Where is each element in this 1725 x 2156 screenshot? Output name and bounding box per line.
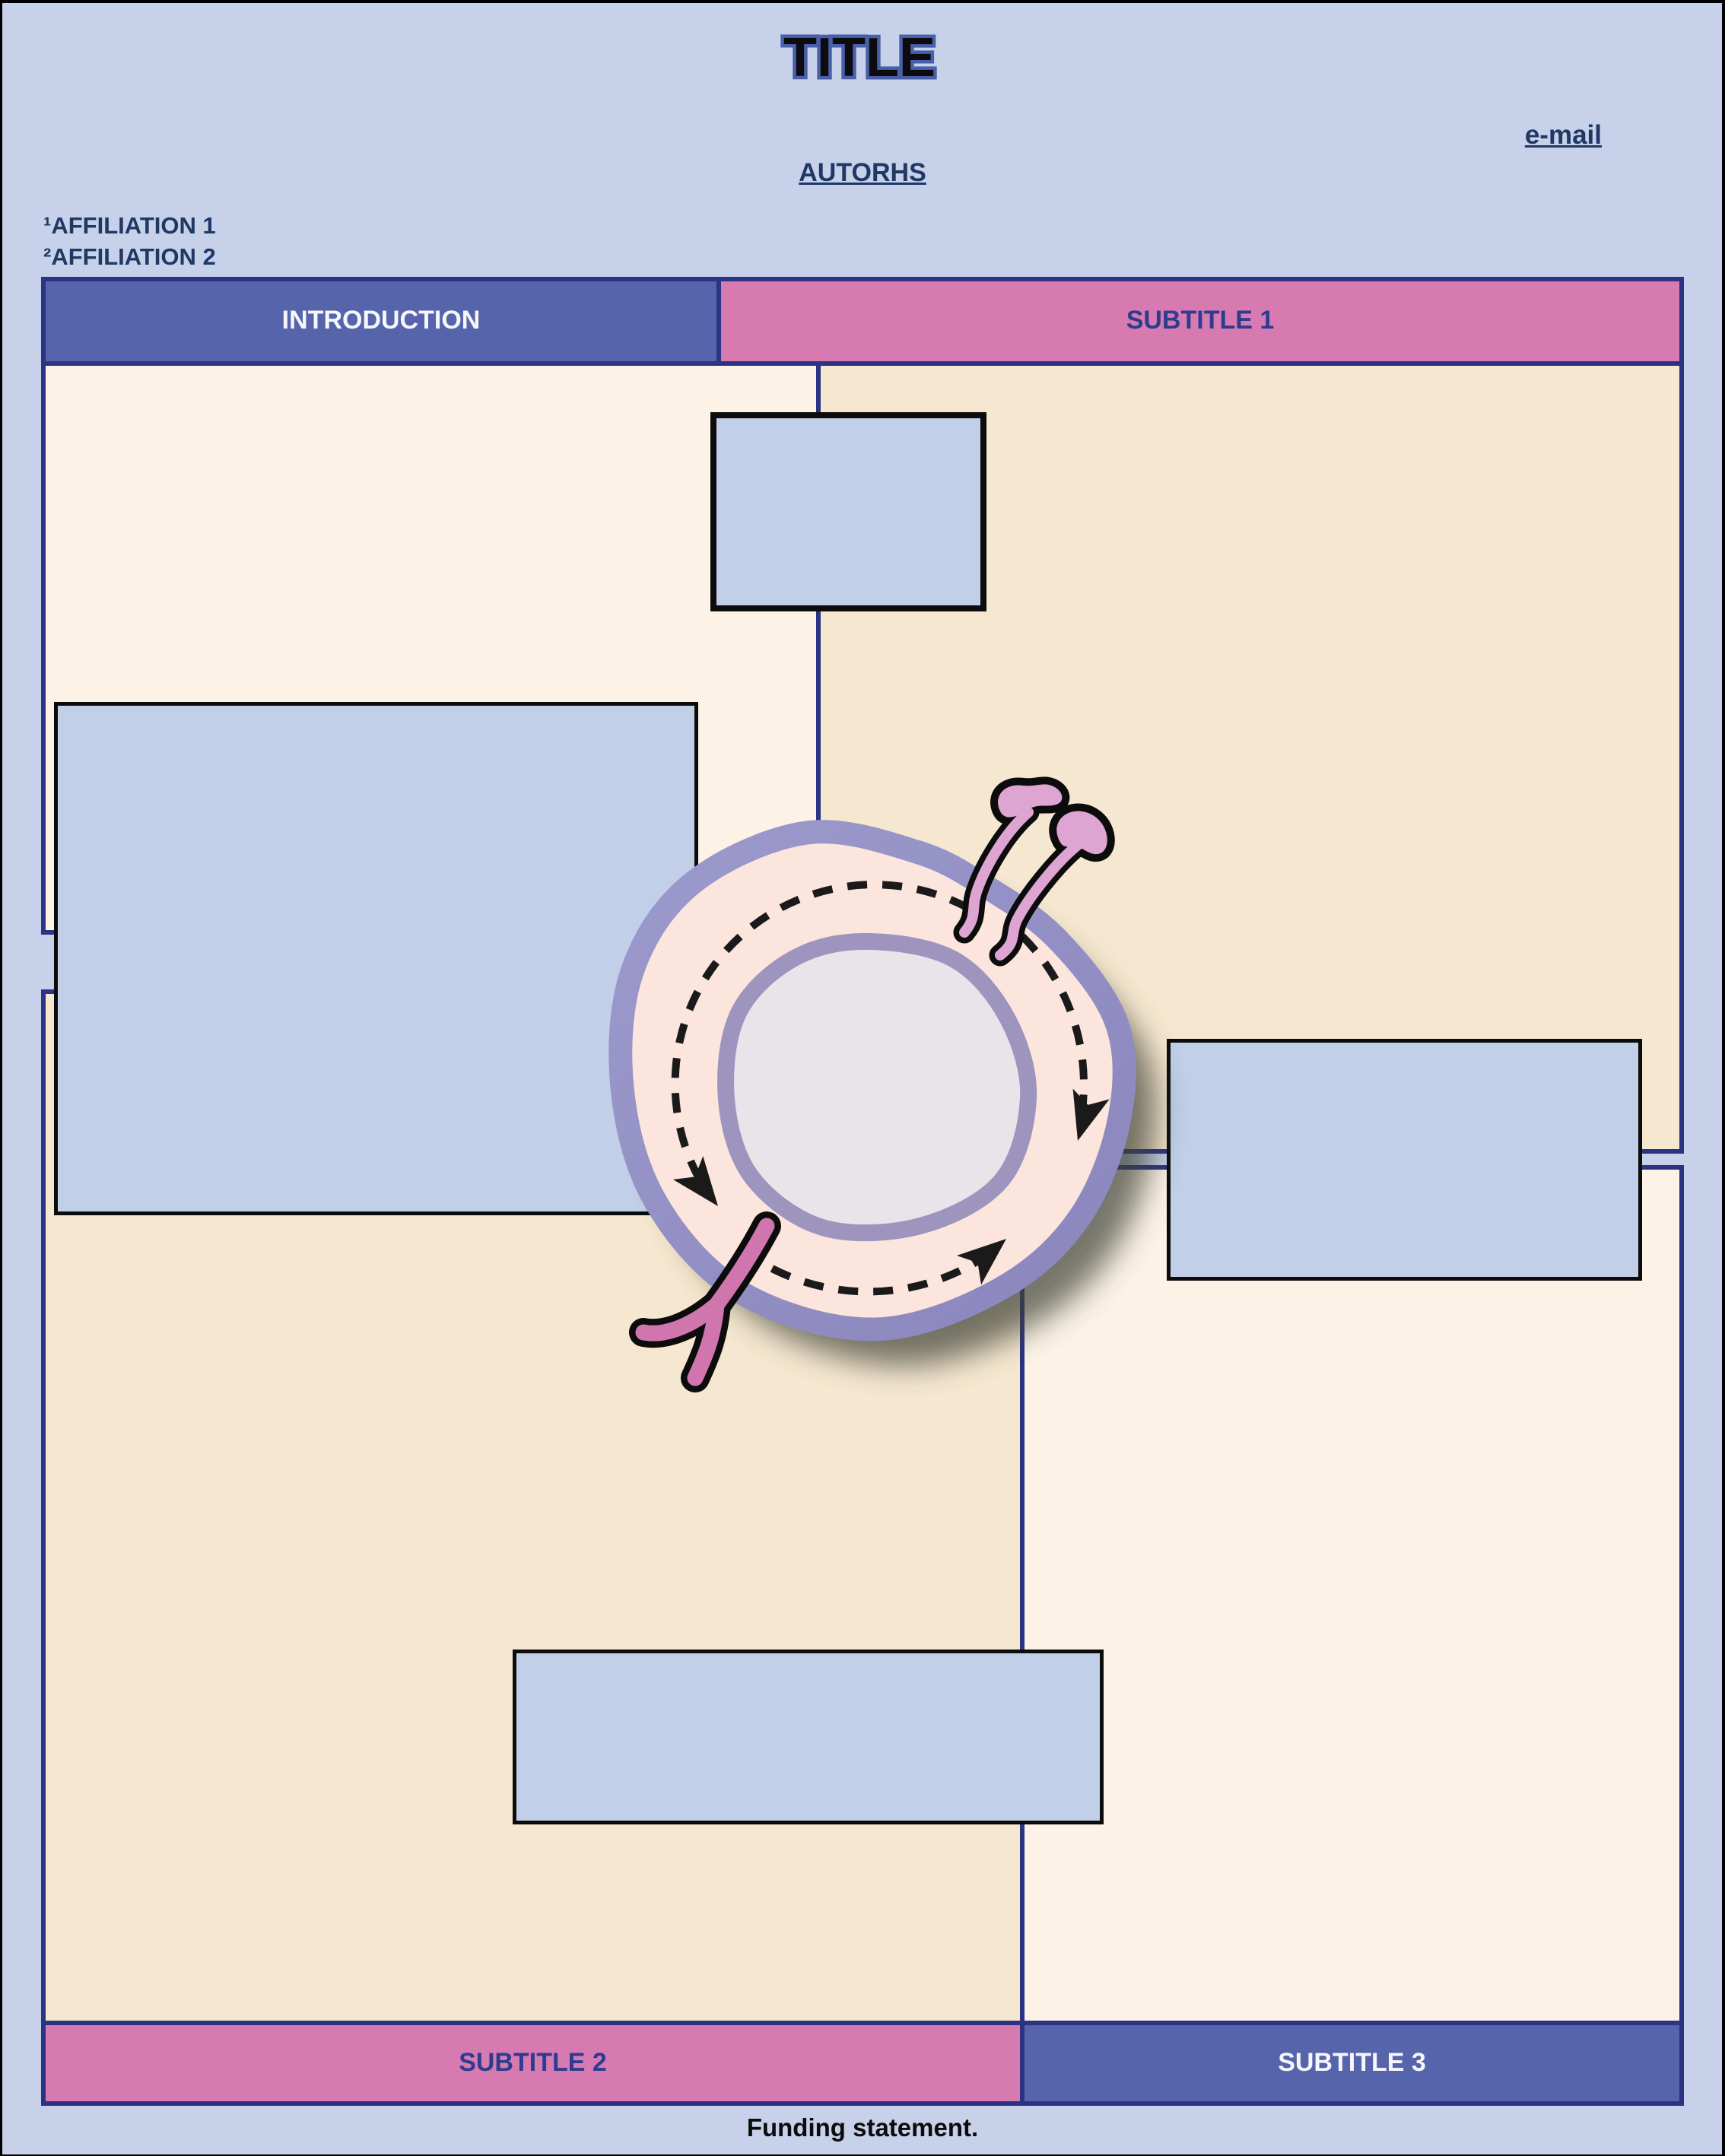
svg-text:TITLE: TITLE: [783, 27, 936, 88]
